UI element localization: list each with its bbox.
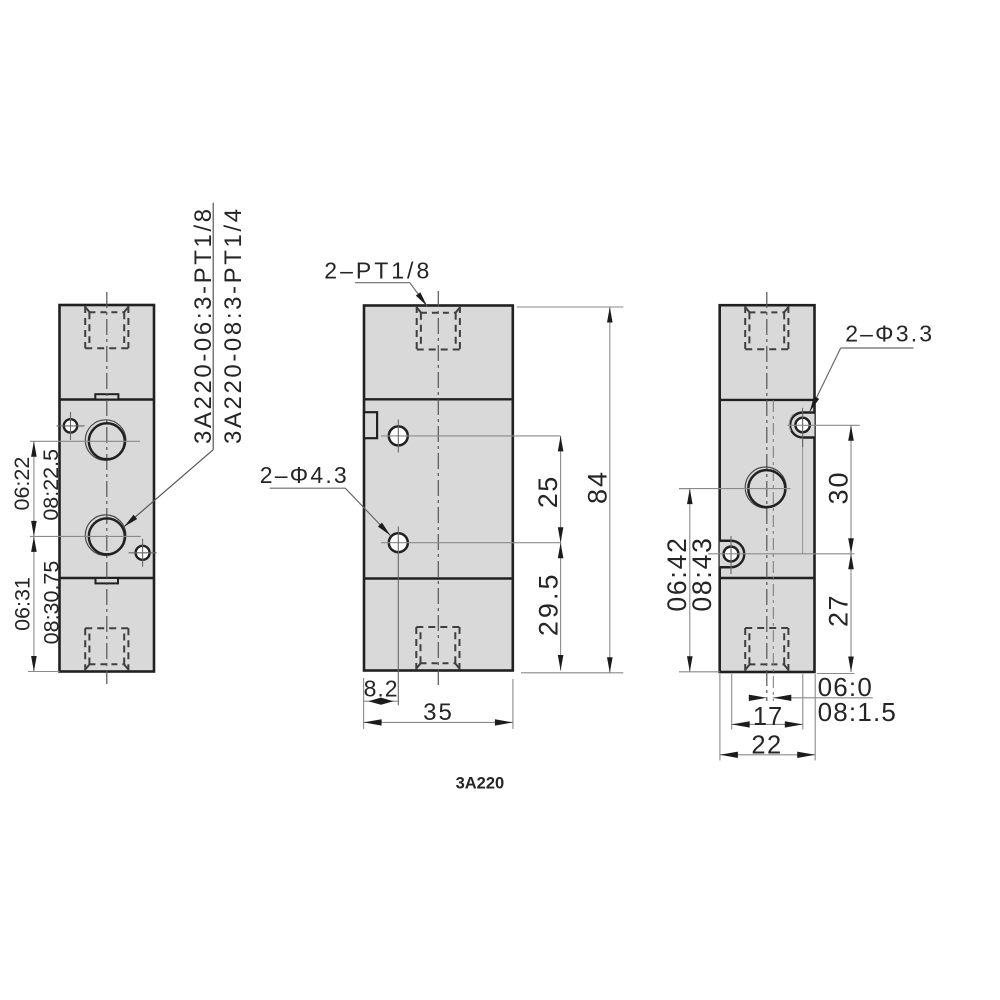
svg-text:06:31: 06:31	[10, 577, 34, 631]
svg-text:35: 35	[423, 699, 454, 726]
svg-text:84: 84	[583, 470, 613, 504]
svg-text:30: 30	[824, 470, 854, 504]
svg-text:08:43: 08:43	[687, 536, 717, 611]
svg-text:17: 17	[753, 703, 783, 731]
svg-text:06:22: 06:22	[10, 457, 34, 511]
svg-text:3A220-08:3-PT1/4: 3A220-08:3-PT1/4	[220, 206, 247, 444]
svg-text:2–Φ4.3: 2–Φ4.3	[260, 462, 349, 488]
svg-text:08:30.75: 08:30.75	[39, 561, 63, 645]
svg-text:2–PT1/8: 2–PT1/8	[324, 258, 432, 284]
svg-text:08:1.5: 08:1.5	[818, 697, 898, 727]
svg-text:8.2: 8.2	[364, 675, 399, 701]
svg-text:29.5: 29.5	[533, 572, 563, 637]
svg-text:22: 22	[751, 732, 782, 760]
svg-text:2–Φ3.3: 2–Φ3.3	[845, 320, 934, 346]
svg-text:3A220: 3A220	[456, 774, 505, 792]
svg-text:25: 25	[533, 475, 563, 508]
svg-text:08:22.5: 08:22.5	[39, 449, 63, 521]
svg-text:27: 27	[824, 594, 854, 627]
